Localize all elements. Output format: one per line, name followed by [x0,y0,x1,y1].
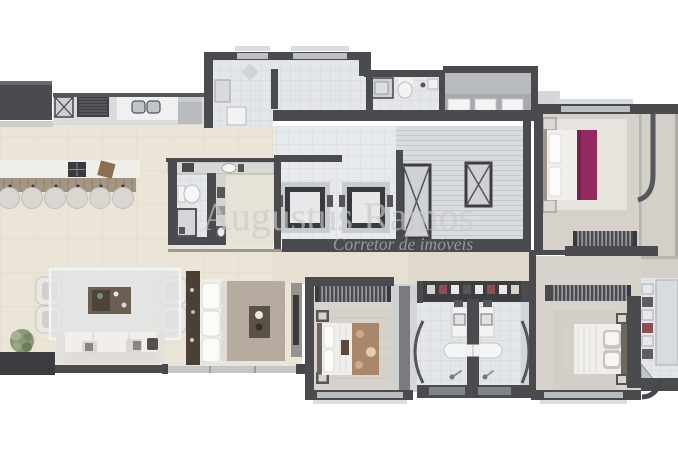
svg-text:Augustus Ramos: Augustus Ramos [202,194,474,239]
svg-text:Corretor de imóveis: Corretor de imóveis [333,234,473,254]
